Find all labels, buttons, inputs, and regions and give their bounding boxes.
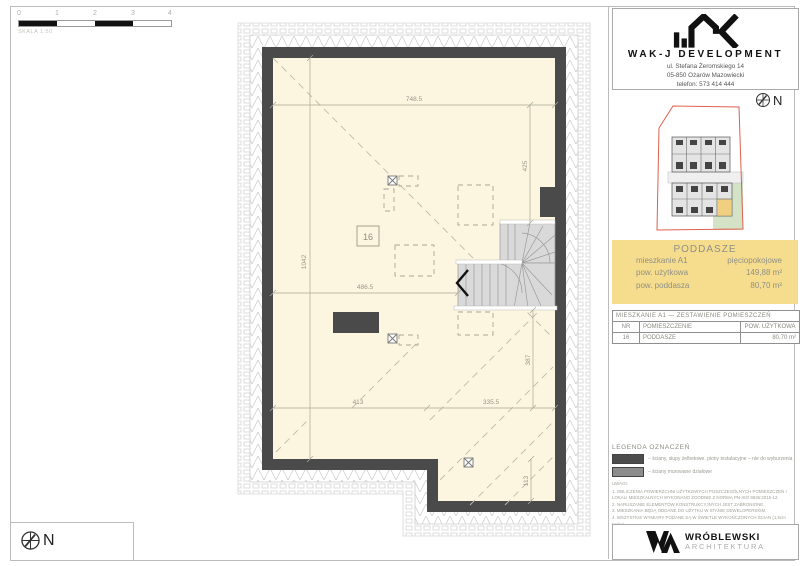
notes-title: UWAGI: (612, 481, 798, 488)
legend-swatch-structural (612, 454, 644, 464)
north-label: N (43, 532, 55, 550)
scale-tick: 0 (17, 10, 21, 17)
legend-label: – ściany, słupy żelbetowe, piony instala… (648, 456, 792, 462)
wakj-logo-icon (660, 14, 752, 48)
developer-address-line1: ul. Stefana Żeromskiego 14 (667, 62, 744, 71)
architect-name: WRÓBLEWSKI (685, 533, 765, 543)
dim-right-top: 425 (522, 160, 529, 171)
unit-card-value: 149,88 m² (746, 267, 782, 279)
scale-tick: 1 (55, 10, 59, 17)
scale-label: SKALA 1:50 (18, 29, 178, 35)
stair-opening-edge-bottom (454, 306, 557, 310)
rooms-table: MIESZKANIE A1 — ZESTAWIENIE POMIESZCZEŃ … (612, 310, 800, 344)
scale-tick: 3 (131, 10, 135, 17)
col-area: POW. UŻYTKOWA (741, 322, 799, 332)
chimney-center (333, 312, 379, 333)
architect-subtitle: ARCHITEKTURA (685, 542, 765, 551)
unit-card: PODDASZE mieszkanie A1 pięciopokojowe po… (612, 240, 798, 304)
unit-card-value: pięciopokojowe (727, 255, 782, 267)
unit-card-label: pow. poddasza (636, 280, 689, 292)
site-highlighted-unit (717, 199, 732, 216)
scale-tick: 2 (93, 10, 97, 17)
dim-top: 748.5 (406, 96, 423, 103)
note-line: 2. NARUSZANIE ELEMENTÓW KONSTRUKCYJNYCH … (612, 502, 798, 509)
dim-left: 1042 (301, 254, 308, 269)
compass-icon (20, 530, 41, 551)
note-line: 1. OBLICZENIA POWIERZCHNI UŻYTKOWYCH POS… (612, 489, 798, 502)
rooms-table-header: NR POMIESZCZENIE POW. UŻYTKOWA (613, 322, 799, 333)
developer-address-line2: 05-850 Ożarów Mazowiecki (667, 71, 744, 80)
dim-right-mid: 387 (525, 354, 532, 365)
unit-card-label: pow. użytkowa (636, 267, 688, 279)
dim-bottom-left: 413 (353, 399, 364, 406)
note-line: 3. MIESZKANIA BĘDĄ ODDANE DO UŻYTKU W ST… (612, 508, 798, 515)
legend-item: – ściany, słupy żelbetowe, piony instala… (612, 454, 798, 464)
scale-bar: 0 1 2 3 4 SKALA 1:50 (18, 10, 178, 35)
drawing-sheet: 16 748.5 425 1042 486.5 413 335.5 387 (0, 0, 800, 566)
unit-card-value: 80,70 m² (750, 280, 782, 292)
developer-address: ul. Stefana Żeromskiego 14 05-850 Ożarów… (667, 62, 744, 89)
stair-landing-edge (456, 260, 522, 264)
legend: LEGENDA OZNACZEŃ – ściany, słupy żelbeto… (612, 444, 798, 480)
legend-swatch-partition (612, 467, 644, 477)
scale-bar-ticks: 0 1 2 3 4 (18, 10, 178, 19)
scale-tick: 4 (168, 10, 172, 17)
col-nr: NR (613, 322, 640, 332)
rooms-table-title: MIESZKANIE A1 — ZESTAWIENIE POMIESZCZEŃ (613, 311, 799, 322)
unit-card-label: mieszkanie A1 (636, 255, 688, 267)
cell-room: PODDASZE (640, 333, 741, 343)
stair-opening-edge-top (500, 220, 555, 224)
legend-item: – ściany murowane działowe (612, 467, 798, 477)
site-building-row2 (672, 183, 732, 216)
developer-name: WAK-J DEVELOPMENT (628, 49, 783, 60)
legend-label: – ściany murowane działowe (648, 469, 712, 475)
dim-mid: 486.5 (357, 284, 374, 291)
site-building-row1 (672, 137, 730, 172)
rooms-table-row: 16 PODDASZE 80,70 m² (613, 333, 799, 343)
wa-logo-icon (646, 531, 680, 553)
dim-right-bottom: 113 (523, 475, 530, 486)
room-number: 16 (363, 232, 373, 242)
north-indicator-corner: N (20, 530, 55, 551)
unit-card-row: pow. użytkowa 149,88 m² (612, 267, 798, 279)
unit-card-row: mieszkanie A1 pięciopokojowe (612, 255, 798, 267)
architect-logo-box: WRÓBLEWSKI ARCHITEKTURA (612, 524, 799, 560)
dim-bottom-right: 335.5 (483, 399, 500, 406)
scale-bar-segments (18, 20, 172, 27)
site-plan (612, 104, 798, 238)
cell-nr: 16 (613, 333, 640, 343)
legend-title: LEGENDA OZNACZEŃ (612, 444, 798, 451)
col-room: POMIESZCZENIE (640, 322, 741, 332)
unit-card-row: pow. poddasza 80,70 m² (612, 280, 798, 292)
chimney-right (540, 187, 555, 217)
unit-card-title: PODDASZE (612, 244, 798, 255)
cell-area: 80,70 m² (741, 333, 799, 343)
site-road (668, 172, 743, 183)
developer-address-line3: telefon: 573 414 444 (667, 80, 744, 89)
developer-logo-box: WAK-J DEVELOPMENT ul. Stefana Żeromskieg… (612, 8, 799, 90)
